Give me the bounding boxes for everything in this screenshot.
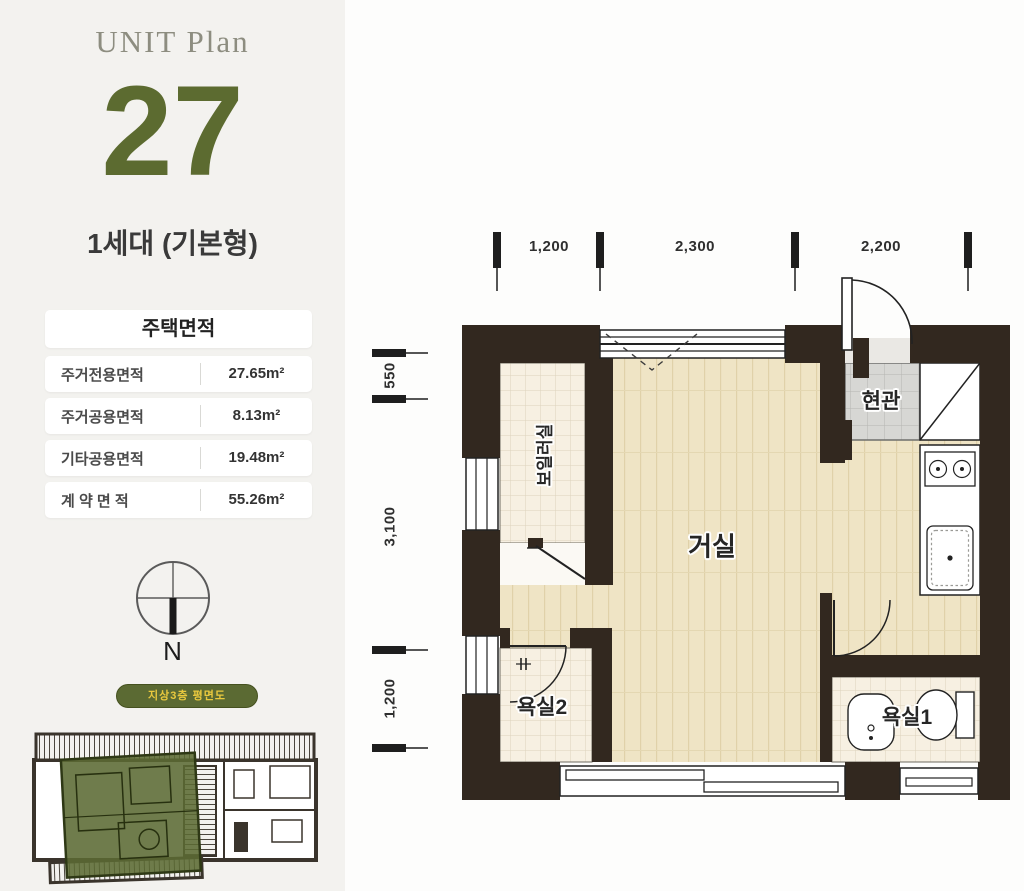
table-row: 주거전용면적 27.65m² xyxy=(45,356,312,392)
north-label: N xyxy=(0,636,345,667)
toilet-tank xyxy=(956,692,974,738)
kitchen-sink-icon xyxy=(927,526,973,590)
compass-icon xyxy=(133,558,213,638)
area-row-label: 기타공용면적 xyxy=(45,448,200,469)
room-label-bath2: 욕실2 xyxy=(517,691,567,721)
dim-top-2: 2,300 xyxy=(650,238,740,255)
dimension-ticks-left xyxy=(372,349,428,752)
unit-type-label: 1세대 (기본형) xyxy=(0,222,345,262)
table-row: 주거공용면적 8.13m² xyxy=(45,398,312,434)
dim-left-1: 550 xyxy=(382,331,399,421)
dim-top-3: 2,200 xyxy=(836,238,926,255)
floor-badge: 지상3층 평면도 xyxy=(116,684,258,708)
page-title: UNIT Plan xyxy=(0,24,345,60)
area-row-label: 계 약 면 적 xyxy=(45,490,200,511)
area-table-header: 주택면적 xyxy=(45,310,312,348)
table-row: 기타공용면적 19.48m² xyxy=(45,440,312,476)
room-label-boiler: 보일러실 xyxy=(531,424,556,487)
area-row-label: 주거전용면적 xyxy=(45,364,200,385)
dim-left-2: 3,100 xyxy=(382,482,399,572)
highlighted-unit xyxy=(61,753,201,878)
stove-icon xyxy=(925,452,975,486)
room-label-living: 거실 xyxy=(688,527,736,564)
unit-number: 27 xyxy=(0,68,345,196)
room-label-bath1: 욕실1 xyxy=(882,701,932,731)
bath1-bottom-window xyxy=(900,768,978,794)
dim-top-1: 1,200 xyxy=(504,238,594,255)
key-plan-thumbnail xyxy=(22,722,330,887)
living-bottom-window xyxy=(560,766,845,796)
kitchen-counter xyxy=(920,445,980,595)
table-row: 계 약 면 적 55.26m² xyxy=(45,482,312,518)
area-row-label: 주거공용면적 xyxy=(45,406,200,427)
area-row-value: 19.48m² xyxy=(200,447,312,469)
bath2-left-window xyxy=(466,636,498,694)
boiler-left-window xyxy=(466,458,498,530)
dim-left-3: 1,200 xyxy=(382,654,399,744)
sidebar: UNIT Plan 27 1세대 (기본형) 주택면적 주거전용면적 27.65… xyxy=(0,0,345,891)
floor-surfaces xyxy=(500,338,980,762)
area-row-value: 55.26m² xyxy=(200,489,312,511)
area-table: 주택면적 주거전용면적 27.65m² 주거공용면적 8.13m² 기타공용면적… xyxy=(45,310,312,524)
area-row-value: 8.13m² xyxy=(200,405,312,427)
room-label-entrance: 현관 xyxy=(862,385,901,415)
shoe-closet xyxy=(920,363,980,440)
area-row-value: 27.65m² xyxy=(200,363,312,385)
